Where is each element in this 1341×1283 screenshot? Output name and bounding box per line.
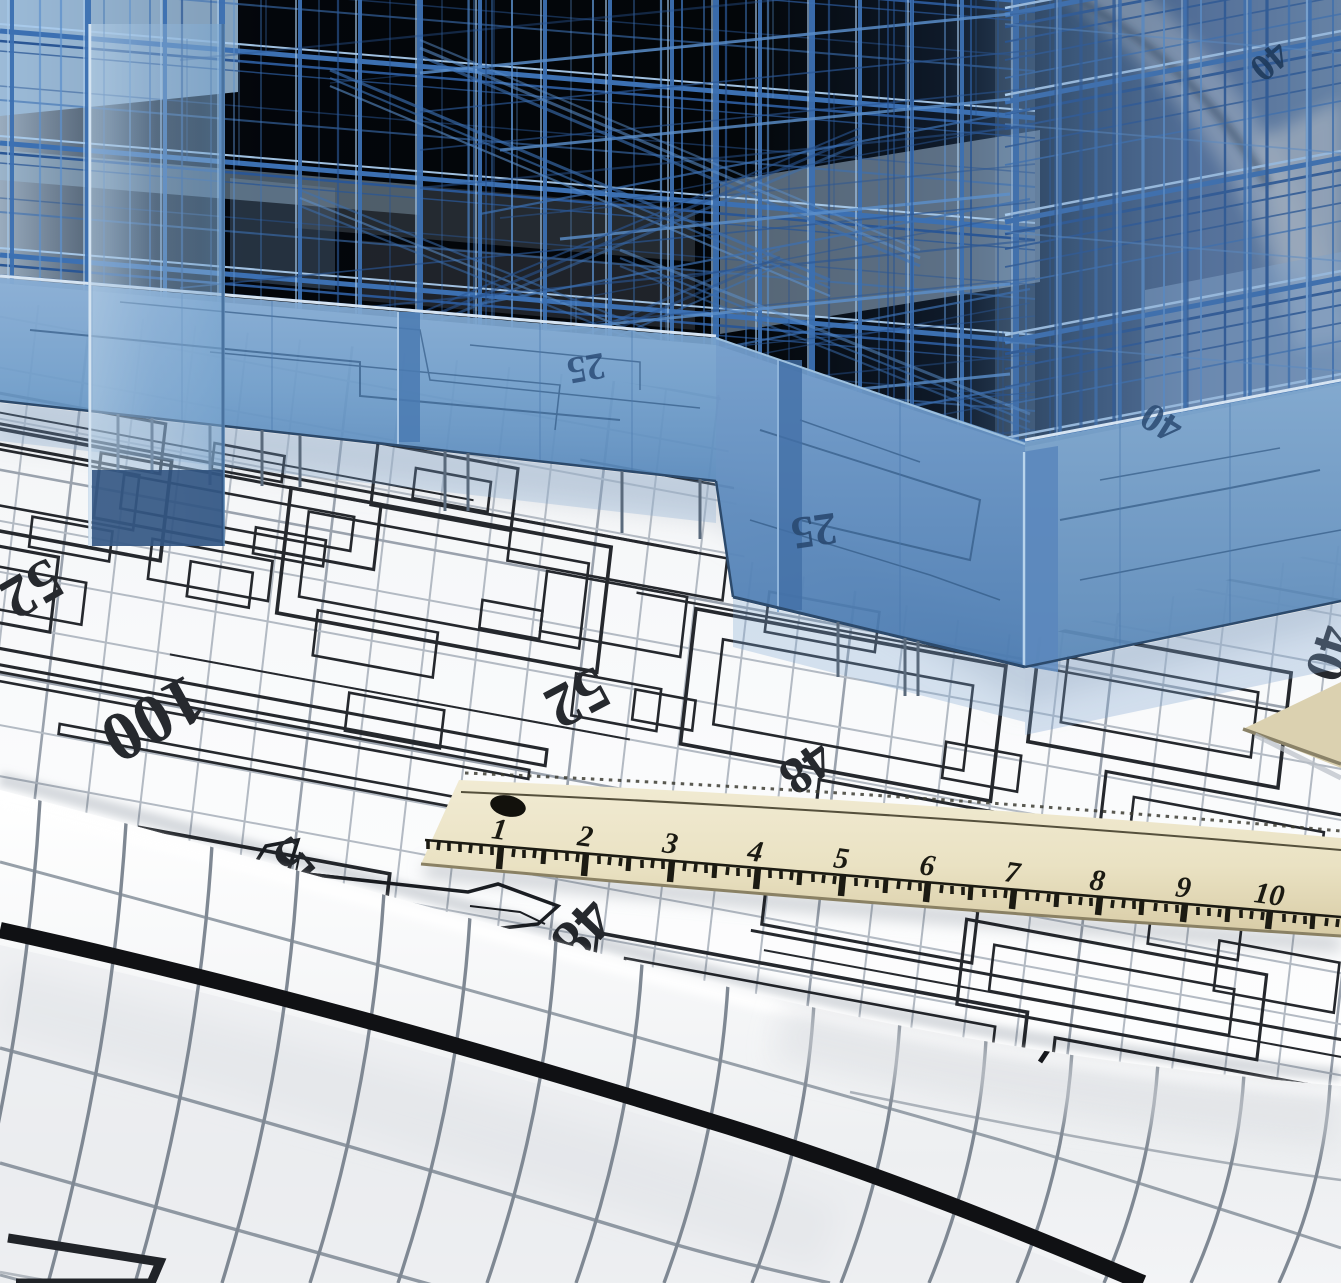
svg-text:25: 25: [788, 503, 841, 560]
svg-text:25: 25: [564, 344, 609, 392]
svg-text:10: 10: [1252, 876, 1286, 913]
